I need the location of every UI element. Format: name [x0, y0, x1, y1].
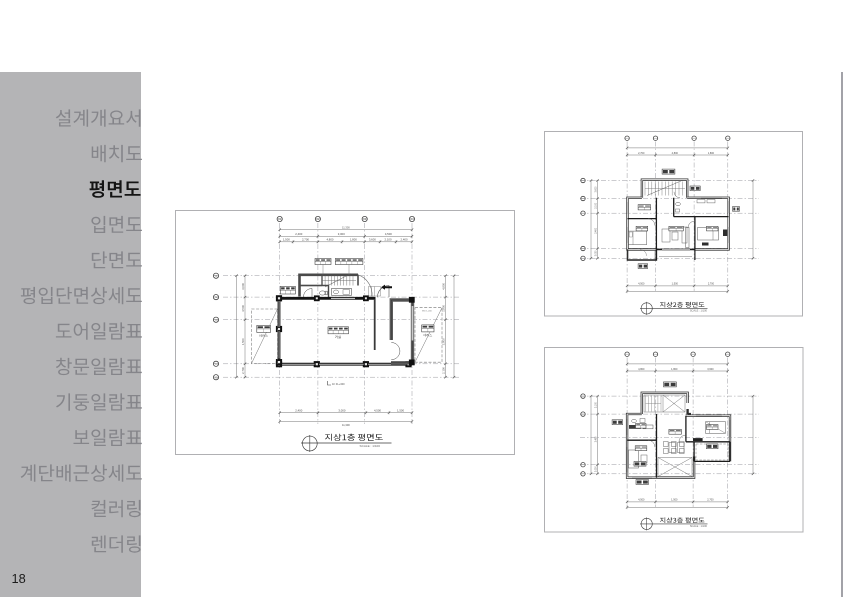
svg-text:3,000: 3,000 [338, 409, 345, 413]
svg-text:4,500: 4,500 [384, 232, 391, 236]
svg-text:2,700: 2,700 [301, 238, 308, 242]
svg-text:WD 1,200: WD 1,200 [422, 311, 433, 313]
svg-text:2,100: 2,100 [595, 401, 597, 407]
svg-text:2,400: 2,400 [295, 232, 302, 236]
svg-text:X1: X1 [278, 217, 282, 221]
svg-text:3,600: 3,600 [707, 367, 714, 370]
svg-text:2,700: 2,700 [638, 152, 645, 155]
svg-text:SCALE : 1/100: SCALE : 1/100 [689, 524, 707, 528]
svg-text:1,800: 1,800 [349, 238, 356, 242]
svg-text:Y4: Y4 [214, 362, 218, 366]
svg-text:2,100: 2,100 [595, 202, 597, 208]
svg-text:X2: X2 [316, 217, 320, 221]
svg-text:2,400: 2,400 [400, 238, 407, 242]
svg-text:1,500: 1,500 [397, 409, 404, 413]
svg-text:2,700: 2,700 [707, 283, 714, 286]
svg-text:X4: X4 [410, 217, 414, 221]
svg-text:2,400: 2,400 [595, 227, 597, 233]
svg-text:2,400: 2,400 [295, 409, 302, 413]
svg-text:2,400: 2,400 [595, 435, 597, 441]
svg-text:Y3: Y3 [214, 318, 218, 322]
svg-text:4,500: 4,500 [638, 498, 645, 501]
svg-text:SCALE : 1/100: SCALE : 1/100 [359, 444, 380, 448]
svg-text:11,300: 11,300 [341, 423, 349, 427]
svg-text:1,800: 1,800 [707, 152, 714, 155]
svg-text:Y5: Y5 [214, 375, 218, 379]
svg-text:Y2: Y2 [214, 295, 218, 299]
svg-text:3,600: 3,600 [595, 186, 597, 192]
svg-text:2,100: 2,100 [441, 367, 445, 374]
svg-text:1F FL+300: 1F FL+300 [332, 382, 345, 386]
svg-text:4,800: 4,800 [326, 238, 333, 242]
svg-text:1,500: 1,500 [671, 498, 678, 501]
svg-text:X3: X3 [363, 217, 367, 221]
svg-text:1,800: 1,800 [671, 367, 678, 370]
svg-text:3,000: 3,000 [595, 465, 597, 471]
svg-text:4,500: 4,500 [638, 283, 645, 286]
svg-text:1,800: 1,800 [441, 304, 445, 311]
svg-text:4,800: 4,800 [441, 282, 445, 289]
svg-text:4,800: 4,800 [638, 367, 645, 370]
svg-text:4,500: 4,500 [241, 304, 245, 311]
svg-text:3,600: 3,600 [368, 238, 375, 242]
svg-text:1,500: 1,500 [671, 283, 678, 286]
svg-text:2,700: 2,700 [241, 367, 245, 374]
svg-text:2,100: 2,100 [384, 238, 391, 242]
svg-text:1,500: 1,500 [241, 338, 245, 345]
svg-text:3,000: 3,000 [241, 282, 245, 289]
svg-text:11,300: 11,300 [341, 225, 349, 229]
svg-text:SCALE : 1/100: SCALE : 1/100 [689, 309, 707, 313]
svg-text:4,800: 4,800 [671, 152, 678, 155]
svg-text:3,000: 3,000 [595, 250, 597, 256]
svg-text:3,600: 3,600 [441, 338, 445, 345]
svg-text:2,700: 2,700 [707, 498, 714, 501]
svg-text:1,500: 1,500 [282, 238, 289, 242]
svg-text:Y1: Y1 [214, 274, 218, 278]
svg-text:3,000: 3,000 [337, 232, 344, 236]
svg-text:4,500: 4,500 [373, 409, 380, 413]
